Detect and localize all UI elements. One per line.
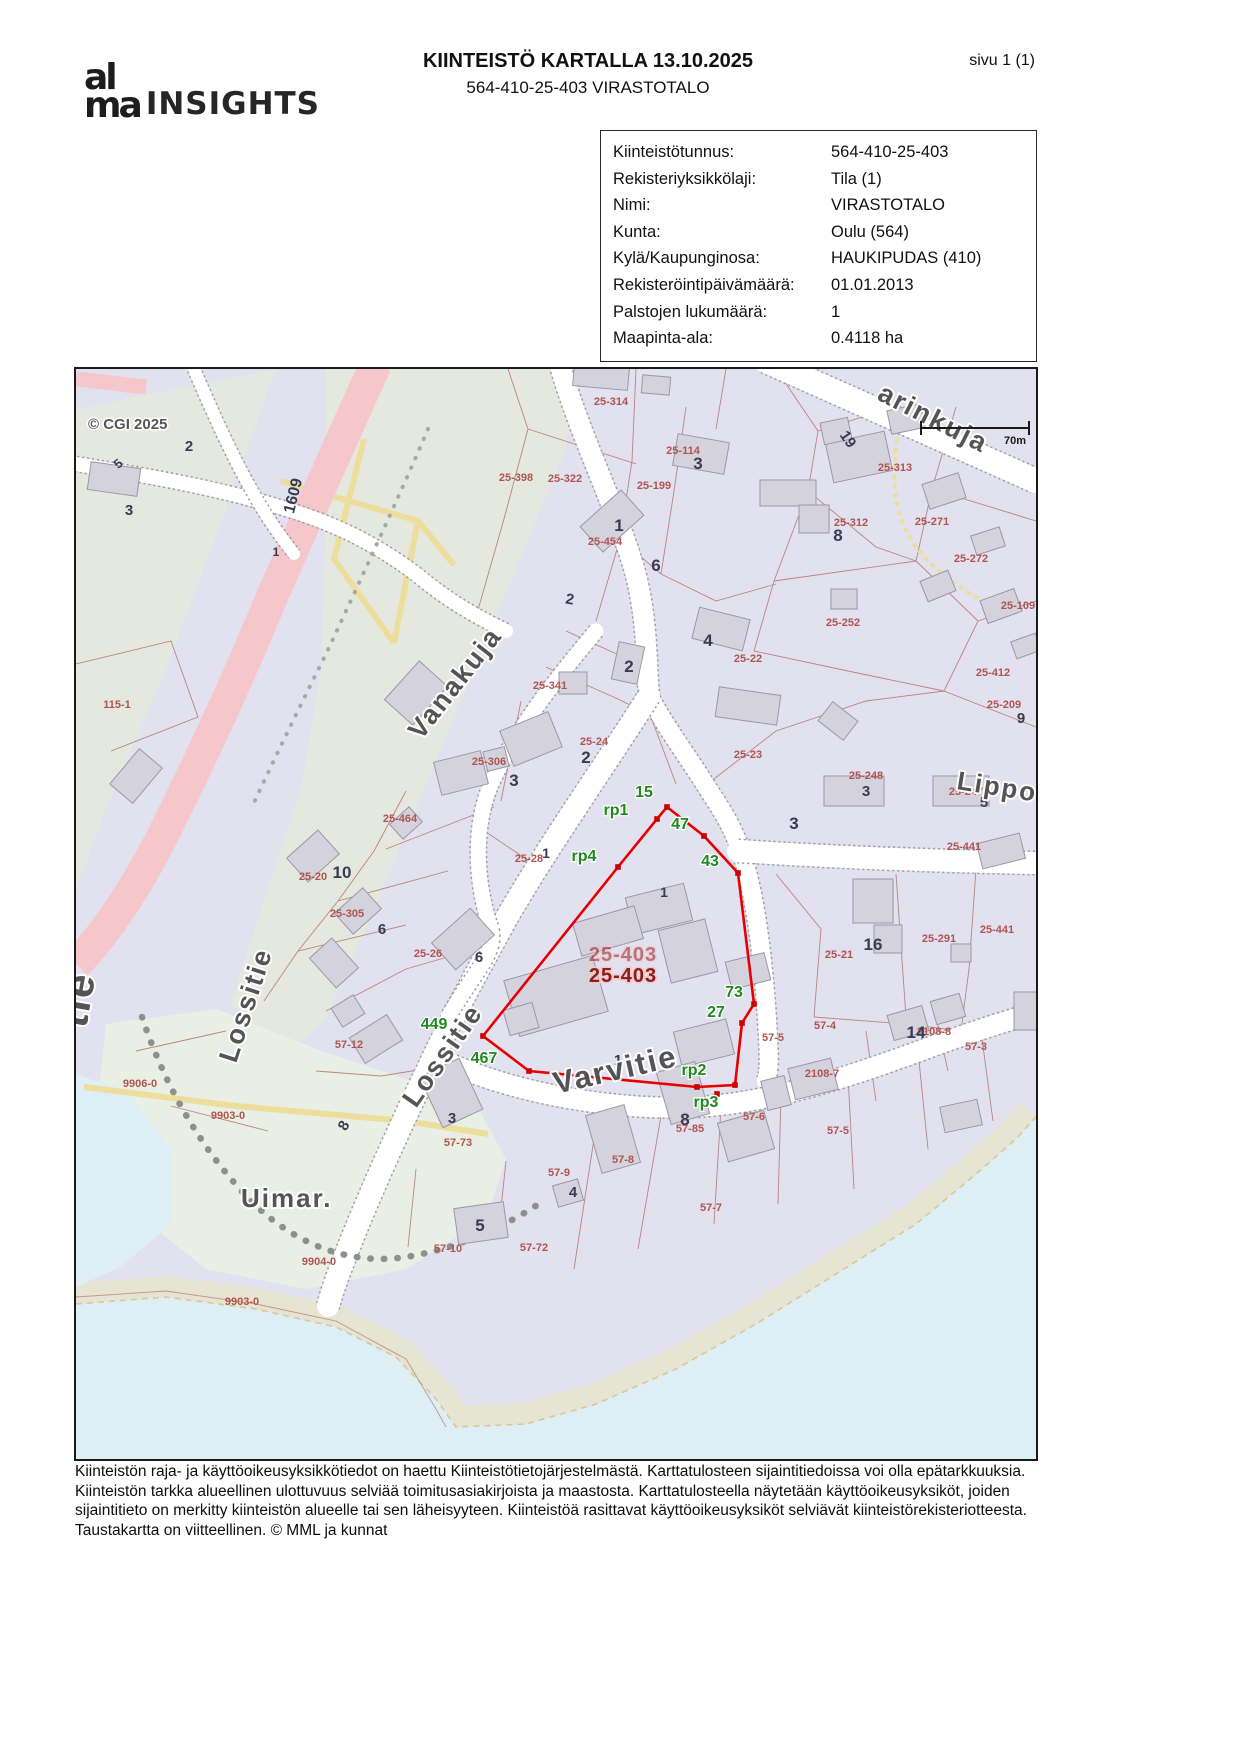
parcel-label: 25-306 [472, 756, 506, 768]
house-number: 4 [703, 631, 713, 650]
parcel-label: 25-22 [734, 653, 762, 665]
house-number: 3 [693, 454, 702, 473]
parcel-label: 25-248 [849, 770, 883, 782]
parcel-label: 2108-7 [805, 1068, 839, 1080]
info-value: HAUKIPUDAS (410) [831, 245, 1036, 272]
building [831, 589, 857, 609]
building [853, 879, 893, 923]
building [951, 944, 971, 962]
house-number: 3 [448, 1110, 456, 1127]
info-row: Nimi:VIRASTOTALO [613, 192, 1036, 219]
parcel-label: 9906-0 [123, 1078, 157, 1090]
parcel-label: 25-341 [533, 680, 567, 692]
title-block: KIINTEISTÖ KARTALLA 13.10.2025 564-410-2… [288, 50, 888, 98]
parcel-label: 25-26 [414, 948, 442, 960]
parcel-label: 57-5 [762, 1032, 784, 1044]
page-number: sivu 1 (1) [969, 52, 1035, 70]
boundary-point-label: 27 [707, 1004, 725, 1021]
boundary-point-label: rp3 [694, 1094, 719, 1111]
parcel-label: 25-23 [734, 749, 762, 761]
parcel-label: 25-109 [1001, 600, 1035, 612]
house-number: 8 [680, 1110, 689, 1129]
info-value: Oulu (564) [831, 219, 1036, 246]
info-row: Rekisteriyksikkölaji:Tila (1) [613, 166, 1036, 193]
map-canvas: 25-39825-32225-31425-11425-19925-45425-3… [76, 369, 1036, 1459]
parcel-label: 25-24 [580, 736, 609, 748]
house-number: 1 [660, 884, 668, 900]
info-value: 0.4118 ha [831, 325, 1036, 352]
boundary-point-dot [664, 804, 670, 810]
info-label: Nimi: [613, 192, 831, 219]
street-label: Uimar. [241, 1183, 333, 1213]
parcel-label: 25-21 [825, 949, 853, 961]
house-number: 9 [1017, 710, 1025, 727]
logo-mark: al ma [84, 64, 140, 120]
parcel-label: 9903-0 [211, 1110, 245, 1122]
logo-bottom: ma [84, 92, 140, 120]
parcel-label: 57-73 [444, 1137, 472, 1149]
boundary-point-label: 467 [471, 1050, 498, 1067]
info-value: 01.01.2013 [831, 272, 1036, 299]
boundary-point-dot [735, 870, 741, 876]
house-number: 5 [475, 1216, 484, 1235]
info-row: Maapinta-ala:0.4118 ha [613, 325, 1036, 352]
parcel-label: 25-441 [980, 924, 1014, 936]
document-subtitle: 564-410-25-403 VIRASTOTALO [288, 78, 888, 98]
house-number: 3 [125, 502, 133, 519]
boundary-point-dot [615, 864, 621, 870]
document-title: KIINTEISTÖ KARTALLA 13.10.2025 [288, 50, 888, 73]
parcel-label: 25-313 [878, 462, 912, 474]
disclaimer-line: Kiinteistön tarkka alueellinen ulottuvuu… [75, 1482, 1125, 1502]
disclaimer-line: Kiinteistön raja- ja käyttöoikeusyksikkö… [75, 1462, 1125, 1482]
highlight-parcel-label: 25-403 [589, 944, 657, 966]
boundary-point-dot [654, 816, 660, 822]
boundary-point-dot [739, 1020, 745, 1026]
house-number: 1 [273, 545, 280, 559]
parcel-label: 57-9 [548, 1167, 570, 1179]
boundary-point-label: 43 [701, 853, 719, 870]
map-copyright: © CGI 2025 [88, 416, 167, 433]
info-label: Rekisteröintipäivämäärä: [613, 272, 831, 299]
boundary-point-dot [694, 1084, 700, 1090]
boundary-point-dot [751, 1001, 757, 1007]
house-number: 16 [864, 935, 883, 954]
building [641, 375, 670, 395]
parcel-label: 115-1 [103, 699, 131, 711]
house-number: 14 [907, 1023, 926, 1042]
boundary-point-dot [480, 1033, 486, 1039]
boundary-point-label: 449 [421, 1016, 448, 1033]
cadastral-map: 25-39825-32225-31425-11425-19925-45425-3… [74, 367, 1038, 1461]
parcel-label: 57-7 [700, 1202, 722, 1214]
house-number: 6 [651, 556, 660, 575]
boundary-point-label: rp2 [682, 1062, 707, 1079]
house-number: 3 [789, 814, 798, 833]
parcel-label: 25-322 [548, 473, 582, 485]
info-label: Maapinta-ala: [613, 325, 831, 352]
parcel-label: 25-272 [954, 553, 988, 565]
house-number: 10 [333, 863, 352, 882]
parcel-label: 25-305 [330, 908, 364, 920]
parcel-label: 9904-0 [302, 1256, 336, 1268]
building [1014, 992, 1036, 1030]
parcel-label: 57-6 [743, 1111, 765, 1123]
boundary-point-label: 47 [671, 816, 689, 833]
disclaimer-line: sijaintitieto on merkitty kiinteistön al… [75, 1501, 1125, 1521]
parcel-label: 25-314 [594, 396, 629, 408]
parcel-label: 57-3 [965, 1041, 987, 1053]
parcel-label: 25-199 [637, 480, 671, 492]
disclaimer-line: Taustakartta on viitteellinen. © MML ja … [75, 1521, 1125, 1541]
boundary-point-label: 73 [725, 984, 743, 1001]
house-number: 6 [475, 949, 483, 966]
boundary-point-dot [526, 1068, 532, 1074]
parcel-label: 57-4 [814, 1020, 837, 1032]
parcel-label: 9903-0 [225, 1296, 259, 1308]
property-info-table: Kiinteistötunnus:564-410-25-403 Rekister… [600, 130, 1037, 362]
parcel-label: 57-12 [335, 1039, 363, 1051]
info-value: Tila (1) [831, 166, 1036, 193]
parcel-label: 57-72 [520, 1242, 548, 1254]
info-value: 1 [831, 299, 1036, 326]
parcel-label: 25-441 [947, 841, 981, 853]
info-label: Kylä/Kaupunginosa: [613, 245, 831, 272]
parcel-label: 25-398 [499, 472, 533, 484]
boundary-point-label: rp1 [604, 802, 629, 819]
house-number: 8 [833, 526, 842, 545]
info-label: Rekisteriyksikkölaji: [613, 166, 831, 193]
alma-insights-logo: al ma INSIGHTS [84, 64, 320, 120]
info-row: Rekisteröintipäivämäärä:01.01.2013 [613, 272, 1036, 299]
pink-road-stub [76, 379, 146, 387]
boundary-point-label: rp4 [572, 848, 597, 865]
highlight-parcel-label: 25-403 [589, 965, 657, 987]
house-number: 6 [378, 921, 386, 938]
info-value: VIRASTOTALO [831, 192, 1036, 219]
parcel-label: 25-412 [976, 667, 1010, 679]
info-label: Kiinteistötunnus: [613, 139, 831, 166]
info-value: 564-410-25-403 [831, 139, 1036, 166]
parcel-label: 25-291 [922, 933, 956, 945]
parcel-label: 57-10 [434, 1243, 462, 1255]
boundary-point-dot [732, 1082, 738, 1088]
parcel-label: 57-5 [827, 1125, 849, 1137]
house-number: 2 [185, 438, 193, 455]
info-row: Kiinteistötunnus:564-410-25-403 [613, 139, 1036, 166]
scale-label: 70m [1004, 435, 1026, 447]
info-label: Palstojen lukumäärä: [613, 299, 831, 326]
parcel-label: 25-454 [588, 536, 623, 548]
info-label: Kunta: [613, 219, 831, 246]
info-row: Kylä/Kaupunginosa:HAUKIPUDAS (410) [613, 245, 1036, 272]
house-number: 1 [614, 516, 623, 535]
info-row: Kunta:Oulu (564) [613, 219, 1036, 246]
boundary-point-dot [701, 833, 707, 839]
parcel-label: 57-8 [612, 1154, 634, 1166]
parcel-label: 25-20 [299, 871, 327, 883]
building [799, 505, 829, 533]
house-number: 1 [542, 845, 550, 861]
house-number: 3 [862, 783, 870, 800]
boundary-point-label: 15 [635, 784, 653, 801]
parcel-label: 25-464 [383, 813, 418, 825]
info-row: Palstojen lukumäärä:1 [613, 299, 1036, 326]
building [760, 480, 816, 506]
house-number: 3 [509, 771, 518, 790]
disclaimer: Kiinteistön raja- ja käyttöoikeusyksikkö… [75, 1462, 1125, 1540]
house-number: 2 [624, 657, 633, 676]
house-number: 4 [569, 1184, 578, 1201]
parcel-label: 25-271 [915, 516, 949, 528]
house-number: 2 [581, 748, 590, 767]
document-page: al ma INSIGHTS KIINTEISTÖ KARTALLA 13.10… [0, 0, 1240, 1754]
parcel-label: 25-28 [515, 853, 543, 865]
parcel-label: 25-252 [826, 617, 860, 629]
